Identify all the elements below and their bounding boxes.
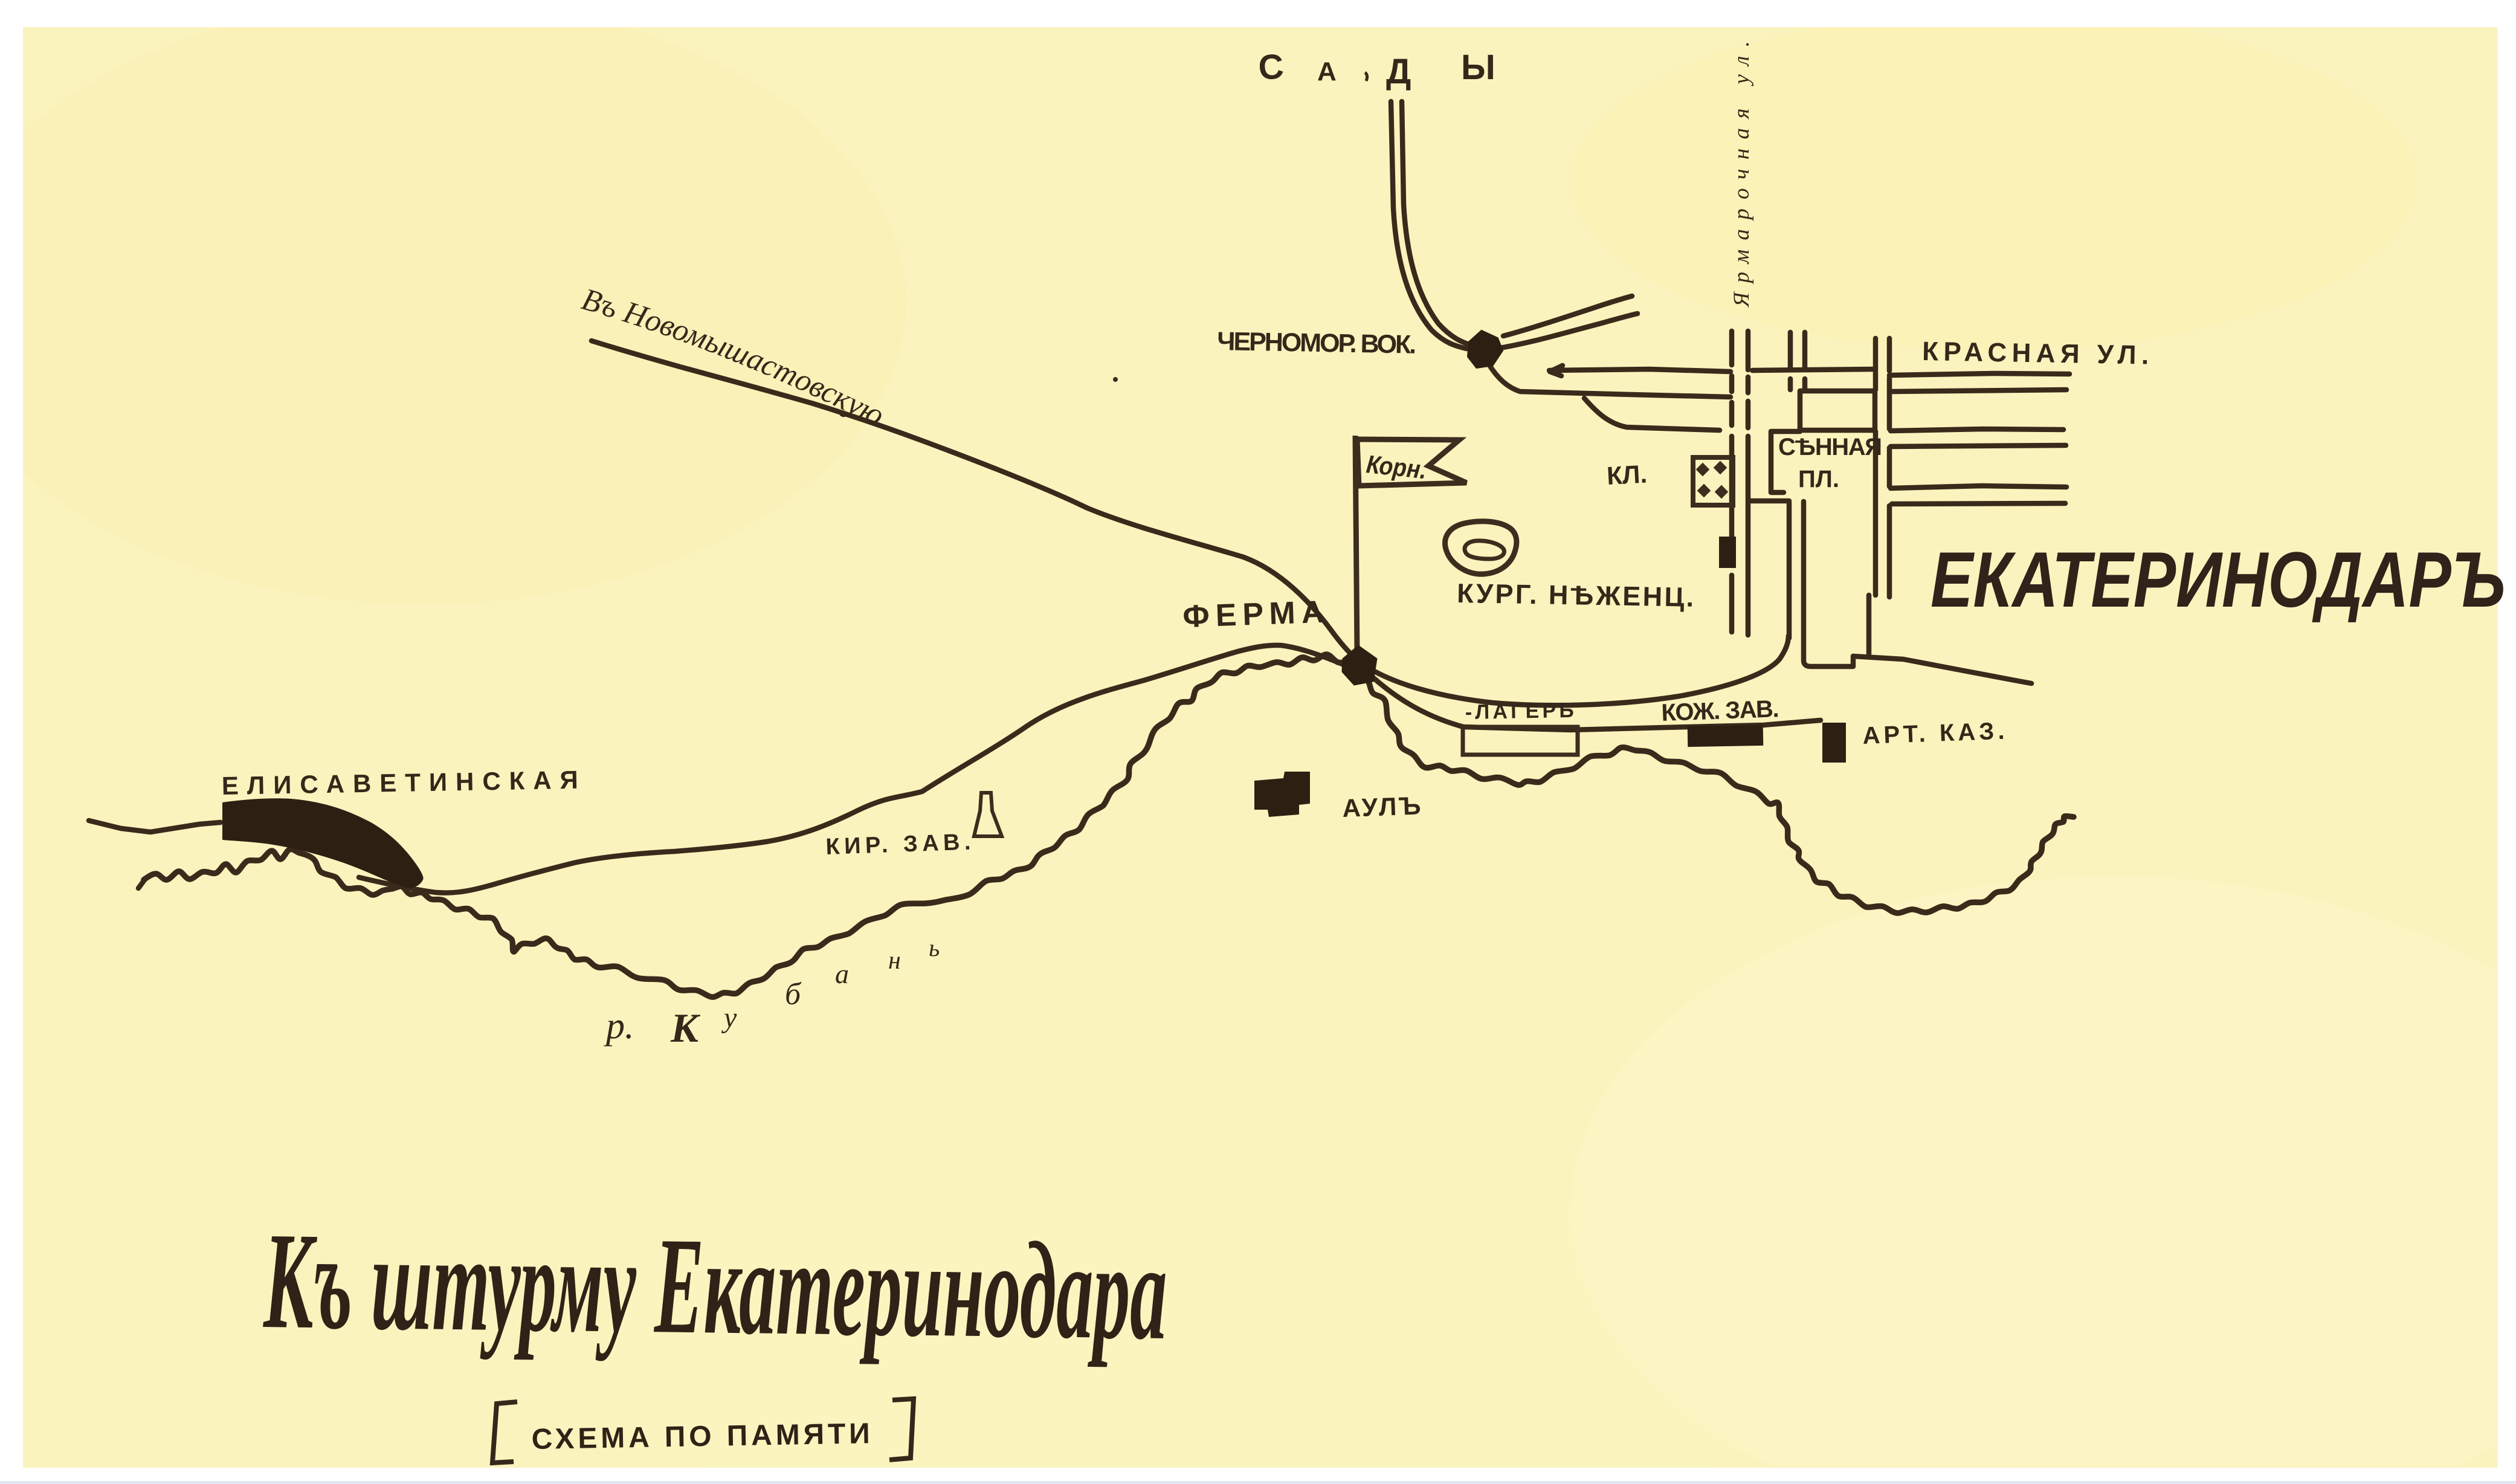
- svg-text:у: у: [721, 1002, 737, 1034]
- svg-text:ЕКАТЕРИНОДАРЪ: ЕКАТЕРИНОДАРЪ: [1931, 535, 2506, 624]
- svg-text:а: а: [835, 958, 849, 989]
- svg-text:Д: Д: [1386, 52, 1411, 91]
- svg-text:н: н: [888, 947, 901, 975]
- svg-text:Ы: Ы: [1461, 48, 1495, 87]
- svg-text:СХЕМА ПО ПАМЯТИ: СХЕМА ПО ПАМЯТИ: [531, 1418, 870, 1456]
- svg-text:р.: р.: [604, 1005, 634, 1047]
- svg-text:ФЕРМА: ФЕРМА: [1182, 595, 1324, 634]
- svg-text:КОЖ. ЗАВ.: КОЖ. ЗАВ.: [1661, 695, 1779, 726]
- svg-text:С: С: [1257, 47, 1285, 88]
- svg-text:КИР. ЗАВ.: КИР. ЗАВ.: [825, 830, 971, 860]
- svg-text:КЛ.: КЛ.: [1606, 460, 1648, 490]
- svg-text:Къ штурму Екатеринодара: Къ штурму Екатеринодара: [262, 1204, 1167, 1369]
- svg-text:ПЛ.: ПЛ.: [1798, 466, 1839, 492]
- svg-text:ь: ь: [929, 934, 940, 961]
- svg-text:АУЛЪ: АУЛЪ: [1342, 791, 1422, 822]
- svg-text:ЧЕРНОМОР. ВОК.: ЧЕРНОМОР. ВОК.: [1217, 327, 1417, 360]
- svg-text:АРТ. КАЗ.: АРТ. КАЗ.: [1862, 718, 2005, 749]
- svg-text:А: А: [1317, 57, 1337, 86]
- svg-text:КУРГ. НѢЖЕНЦ.: КУРГ. НѢЖЕНЦ.: [1457, 578, 1694, 613]
- svg-text:СѢННАЯ: СѢННАЯ: [1778, 434, 1882, 460]
- svg-text:б: б: [785, 977, 802, 1011]
- svg-text:К: К: [670, 1005, 701, 1051]
